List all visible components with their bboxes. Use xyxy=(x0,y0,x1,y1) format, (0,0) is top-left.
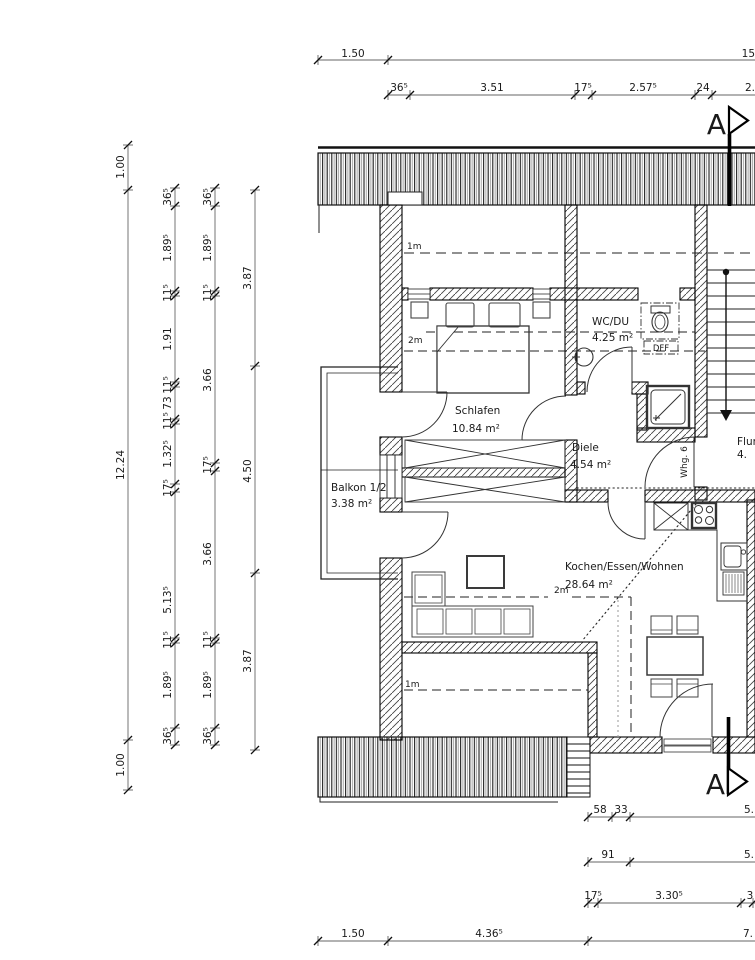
room-label-flur: Flur xyxy=(737,436,755,448)
dim-label: 36⁵ xyxy=(162,188,174,206)
dim-label: 33 xyxy=(614,804,627,816)
exterior-stair xyxy=(567,737,590,797)
room-label-schlafen: Schlafen xyxy=(455,405,500,417)
dim-label: 36⁵ xyxy=(202,188,214,206)
dim-label: 3.66 xyxy=(202,368,214,392)
dim-label: 58 xyxy=(593,804,606,816)
section-letter: A xyxy=(707,108,726,141)
section-flag-icon xyxy=(729,107,748,134)
nightstand xyxy=(533,302,550,318)
label-1m-top: 1m xyxy=(407,242,422,252)
dim-label: 1.50 xyxy=(341,928,364,940)
label-dff: DFF xyxy=(653,344,669,354)
door-threshold xyxy=(664,739,711,745)
dim-label: 3.51 xyxy=(480,82,503,94)
dim-label: 3 xyxy=(747,890,754,902)
bedroom-furniture xyxy=(411,302,550,393)
dim-label: 4.50 xyxy=(242,459,254,482)
dim-label: 1.89⁵ xyxy=(202,671,214,699)
dim-label: 36⁵ xyxy=(390,82,408,94)
dim-label: 11⁵ xyxy=(162,631,174,649)
label-2m-schlafen: 2m xyxy=(408,336,423,346)
staircase xyxy=(707,269,755,421)
dim-label: 3.87 xyxy=(242,266,254,289)
dim-label: 5. xyxy=(744,804,754,816)
room-area-balkon: 3.38 m² xyxy=(331,498,372,510)
dim-label: 5.13⁵ xyxy=(162,586,174,614)
kitchen xyxy=(654,503,747,601)
dim-label: 1.89⁵ xyxy=(162,234,174,262)
chair xyxy=(677,679,698,697)
dim-label: 24 xyxy=(696,82,710,94)
dim-label: 1.32⁵ xyxy=(162,440,174,468)
dim-label: 11⁵ xyxy=(162,376,174,394)
dim-label: 1.00 xyxy=(115,753,127,776)
chimney-outline xyxy=(388,192,422,205)
dim-label: 17⁵ xyxy=(162,479,174,497)
dim-label: 15. xyxy=(742,48,755,60)
living-furniture xyxy=(412,556,703,697)
label-2m-wohnen: 2m xyxy=(554,586,569,596)
dim-label: 11⁵ xyxy=(202,284,214,302)
dim-label: 12.24 xyxy=(115,450,127,480)
dim-label: 3.87 xyxy=(242,649,254,672)
coffee-table xyxy=(467,556,504,588)
dim-label: 73 xyxy=(162,396,174,409)
room-label-diele: Diele xyxy=(572,442,599,454)
dim-label: 5. xyxy=(744,849,754,861)
dim-label: 2. xyxy=(745,82,755,94)
chair xyxy=(651,679,672,697)
doors xyxy=(402,347,713,752)
dim-label: 1.00 xyxy=(115,155,127,178)
bottom-deck-band xyxy=(318,737,590,802)
dim-label: 1.50 xyxy=(341,48,364,60)
dim-label: 17⁵ xyxy=(584,890,602,902)
dining-table xyxy=(647,637,703,675)
handrail-start xyxy=(723,269,729,275)
room-label-balkon: Balkon 1/2 xyxy=(331,482,387,494)
chair xyxy=(651,616,672,634)
stair-down-arrow-icon xyxy=(720,410,732,421)
dim-label: 11⁵ xyxy=(162,284,174,302)
dim-label: 17⁵ xyxy=(574,82,592,94)
dim-label: 36⁵ xyxy=(202,727,214,745)
dim-label: 11⁵ xyxy=(202,631,214,649)
dim-label: 7. xyxy=(743,928,753,940)
room-area-wc: 4.25 m² xyxy=(592,332,633,344)
dim-label: 1.89⁵ xyxy=(202,234,214,262)
dim-label: 3.66 xyxy=(202,542,214,566)
dim-label: 2.57⁵ xyxy=(629,82,657,94)
dim-label: 36⁵ xyxy=(162,727,174,745)
dim-label: 11⁵ xyxy=(162,412,174,430)
room-label-wohnen: Kochen/Essen/Wohnen xyxy=(565,561,684,573)
dim-label: 17⁵ xyxy=(202,456,214,474)
floor-plan-svg: A A Schlafen 10.84 m² Balkon 1/2 3.38 m²… xyxy=(0,0,755,960)
sofa-corner xyxy=(412,572,445,606)
chair xyxy=(677,616,698,634)
dim-label: 3.30⁵ xyxy=(655,890,683,902)
section-letter: A xyxy=(706,768,725,801)
pillow xyxy=(446,303,474,327)
label-1m-bottom: 1m xyxy=(405,680,420,690)
sofa xyxy=(412,606,533,637)
dim-label: 1.89⁵ xyxy=(162,671,174,699)
bathroom-fixtures xyxy=(572,303,689,428)
room-label-wc: WC/DU xyxy=(592,316,629,328)
dim-label: 1.91 xyxy=(162,327,174,350)
room-area-diele: 4.54 m² xyxy=(570,459,611,471)
pillow xyxy=(489,303,520,327)
floor-plan-drawing: A A Schlafen 10.84 m² Balkon 1/2 3.38 m²… xyxy=(0,0,755,960)
walls xyxy=(380,205,755,753)
room-area-schlafen: 10.84 m² xyxy=(452,423,500,435)
label-whg6: Whg. 6 xyxy=(680,446,690,478)
dim-label: 91 xyxy=(601,849,614,861)
dim-label: 4.36⁵ xyxy=(475,928,503,940)
nightstand xyxy=(411,302,428,318)
room-area-flur: 4. xyxy=(737,449,747,461)
roof-window-outline xyxy=(641,303,679,339)
room-area-wohnen: 28.64 m² xyxy=(565,579,613,591)
section-flag-icon xyxy=(728,768,747,795)
